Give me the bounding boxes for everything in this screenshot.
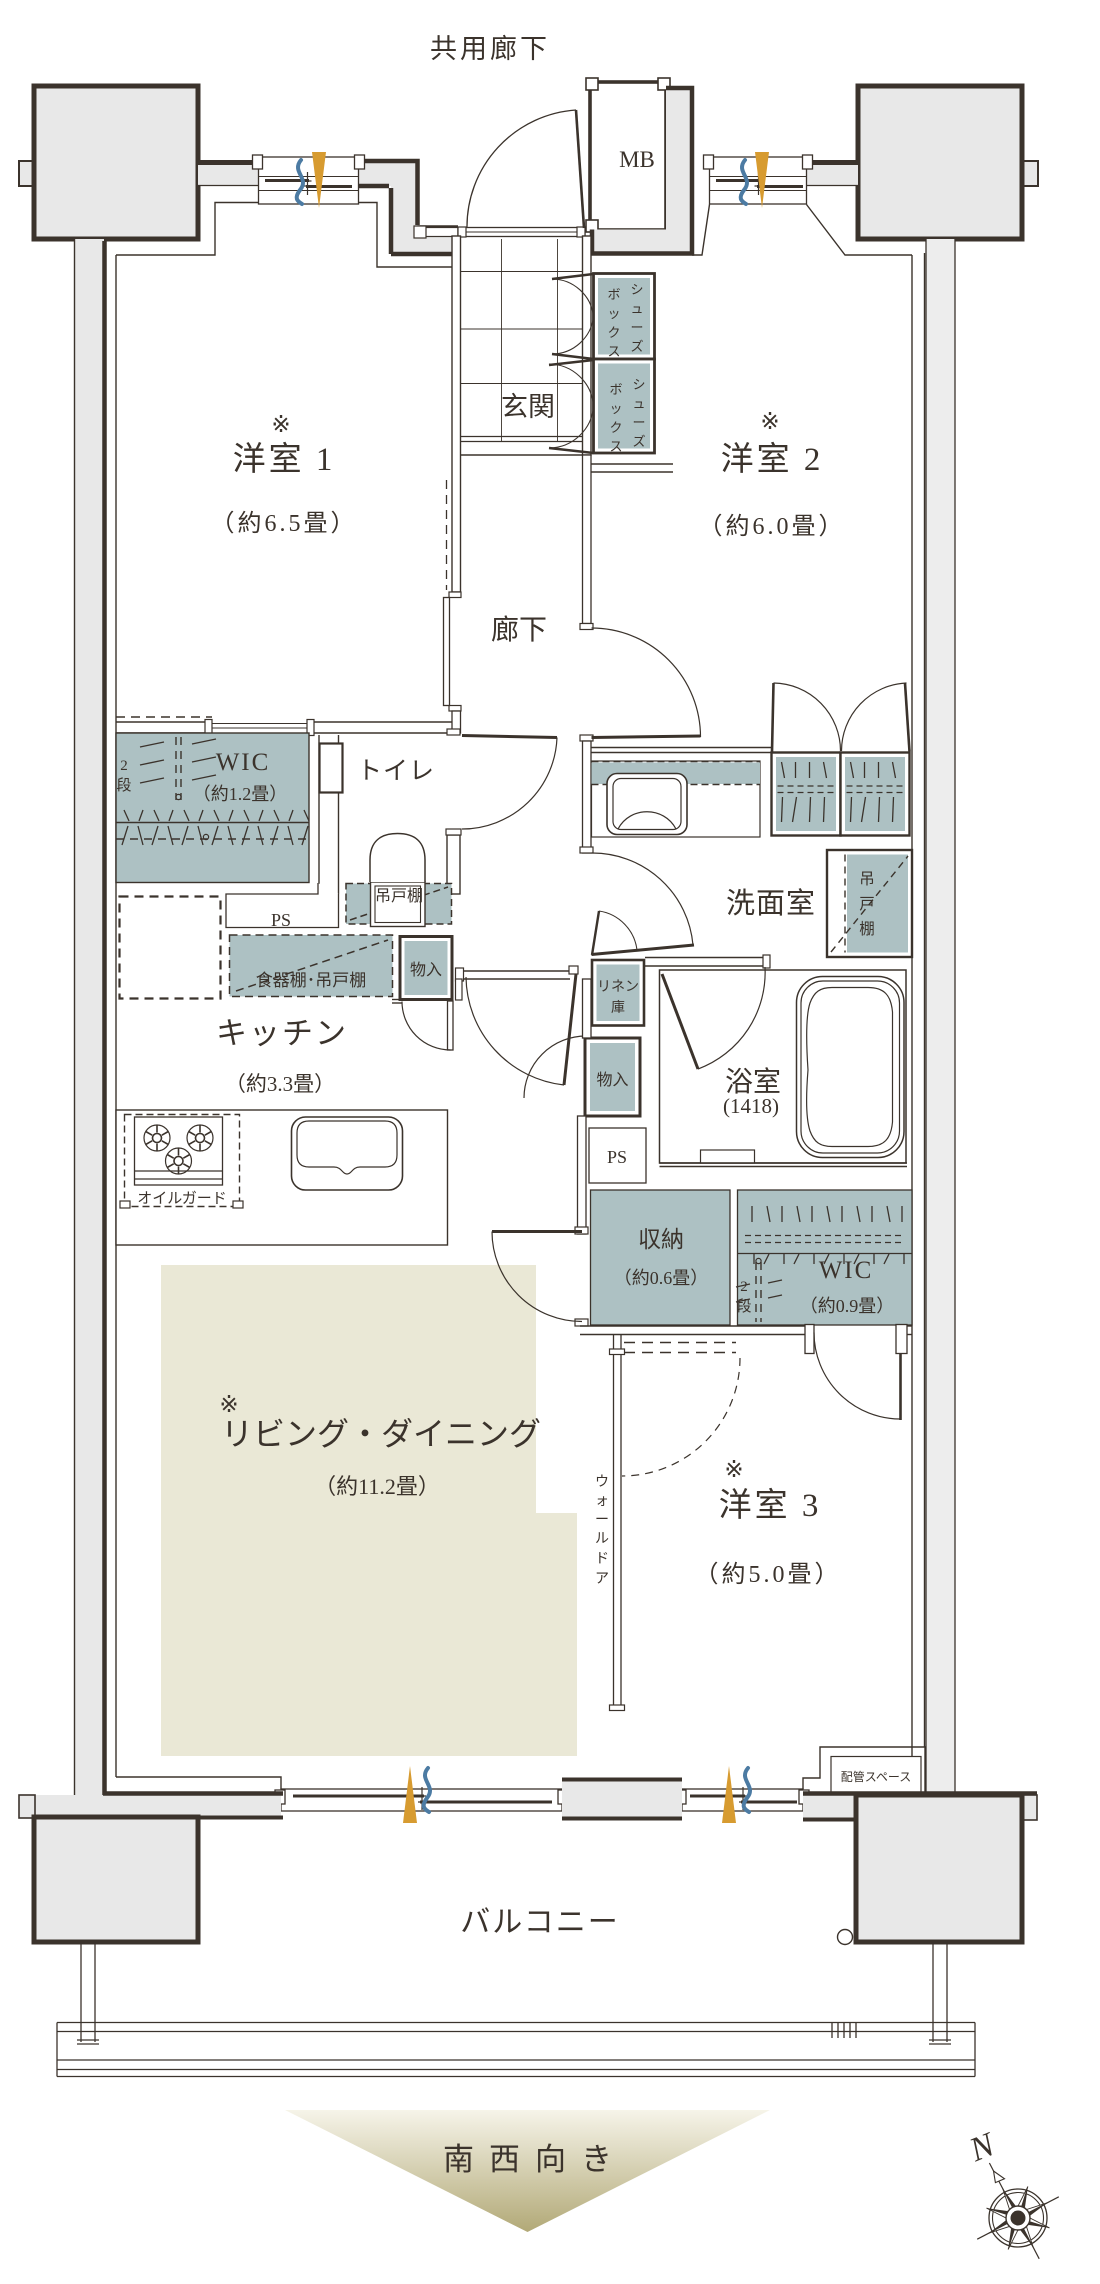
svg-text:ー: ー — [632, 415, 645, 430]
svg-text:※: ※ — [724, 1457, 743, 1482]
svg-text:棚: 棚 — [859, 920, 875, 938]
svg-text:ー: ー — [630, 320, 643, 335]
svg-text:(1418): (1418) — [723, 1094, 779, 1118]
svg-text:ル: ル — [595, 1532, 609, 1547]
svg-text:リネン: リネン — [597, 979, 639, 995]
svg-text:ュ: ュ — [630, 301, 643, 316]
svg-text:段: 段 — [116, 777, 131, 794]
svg-text:玄関: 玄関 — [501, 392, 555, 422]
svg-text:（約0.9畳）: （約0.9畳） — [800, 1296, 895, 1316]
svg-text:2: 2 — [120, 758, 128, 774]
svg-text:（約0.6畳）: （約0.6畳） — [614, 1268, 709, 1288]
svg-text:吊: 吊 — [859, 871, 875, 888]
svg-text:南西向き: 南西向き — [443, 2142, 627, 2177]
svg-text:PS: PS — [607, 1147, 627, 1167]
svg-text:ウ: ウ — [595, 1474, 609, 1490]
svg-text:MB: MB — [619, 147, 655, 172]
svg-text:食器棚･吊戸棚: 食器棚･吊戸棚 — [256, 971, 367, 990]
svg-text:（約6.5畳）: （約6.5畳） — [211, 510, 358, 537]
svg-text:ス: ス — [607, 344, 620, 359]
svg-text:ク: ク — [607, 325, 620, 340]
svg-text:共用廊下: 共用廊下 — [430, 34, 550, 64]
svg-text:※: ※ — [271, 412, 290, 437]
svg-text:配管スペース: 配管スペース — [841, 1769, 912, 1784]
svg-text:洋室 2: 洋室 2 — [721, 441, 824, 478]
svg-text:シ: シ — [630, 282, 643, 297]
svg-text:トイレ: トイレ — [357, 758, 435, 785]
svg-text:ッ: ッ — [609, 401, 622, 416]
svg-text:※: ※ — [760, 409, 779, 434]
svg-text:キッチン: キッチン — [216, 1016, 348, 1051]
svg-text:※: ※ — [219, 1392, 238, 1417]
svg-text:ス: ス — [609, 439, 622, 454]
svg-text:オイルガード: オイルガード — [137, 1190, 227, 1207]
svg-text:ズ: ズ — [632, 434, 645, 449]
svg-text:洗面室: 洗面室 — [726, 887, 816, 920]
svg-text:（約11.2畳）: （約11.2畳） — [314, 1474, 440, 1499]
svg-text:リビング・ダイニング: リビング・ダイニング — [221, 1416, 541, 1452]
svg-text:戸: 戸 — [859, 896, 875, 913]
svg-text:ド: ド — [595, 1552, 609, 1567]
svg-text:庫: 庫 — [611, 999, 625, 1016]
svg-text:洋室 3: 洋室 3 — [719, 1487, 822, 1524]
svg-text:2: 2 — [740, 1279, 748, 1295]
svg-text:（約6.0畳）: （約6.0畳） — [699, 513, 846, 540]
svg-text:ォ: ォ — [595, 1494, 609, 1509]
svg-text:収納: 収納 — [638, 1227, 684, 1252]
svg-text:PS: PS — [271, 910, 291, 930]
svg-text:段: 段 — [736, 1298, 751, 1315]
svg-text:ズ: ズ — [630, 339, 643, 354]
svg-text:WIC: WIC — [216, 749, 271, 776]
svg-text:（約3.3畳）: （約3.3畳） — [225, 1072, 335, 1096]
svg-text:ボ: ボ — [609, 382, 622, 397]
svg-text:ュ: ュ — [632, 396, 645, 411]
svg-text:（約5.0畳）: （約5.0畳） — [695, 1561, 842, 1588]
svg-text:物入: 物入 — [410, 961, 442, 979]
svg-text:ッ: ッ — [607, 306, 620, 321]
svg-text:ー: ー — [595, 1513, 609, 1528]
svg-text:吊戸棚: 吊戸棚 — [375, 887, 423, 905]
svg-text:廊下: 廊下 — [491, 614, 547, 646]
svg-text:物入: 物入 — [596, 1071, 628, 1089]
svg-text:洋室 1: 洋室 1 — [233, 441, 336, 478]
svg-text:ア: ア — [595, 1572, 609, 1587]
svg-text:WIC: WIC — [819, 1257, 874, 1284]
svg-text:ボ: ボ — [607, 287, 620, 302]
svg-text:ク: ク — [609, 420, 622, 435]
svg-text:（約1.2畳）: （約1.2畳） — [193, 784, 288, 804]
svg-text:シ: シ — [632, 377, 645, 392]
svg-text:バルコニー: バルコニー — [460, 1906, 619, 1939]
